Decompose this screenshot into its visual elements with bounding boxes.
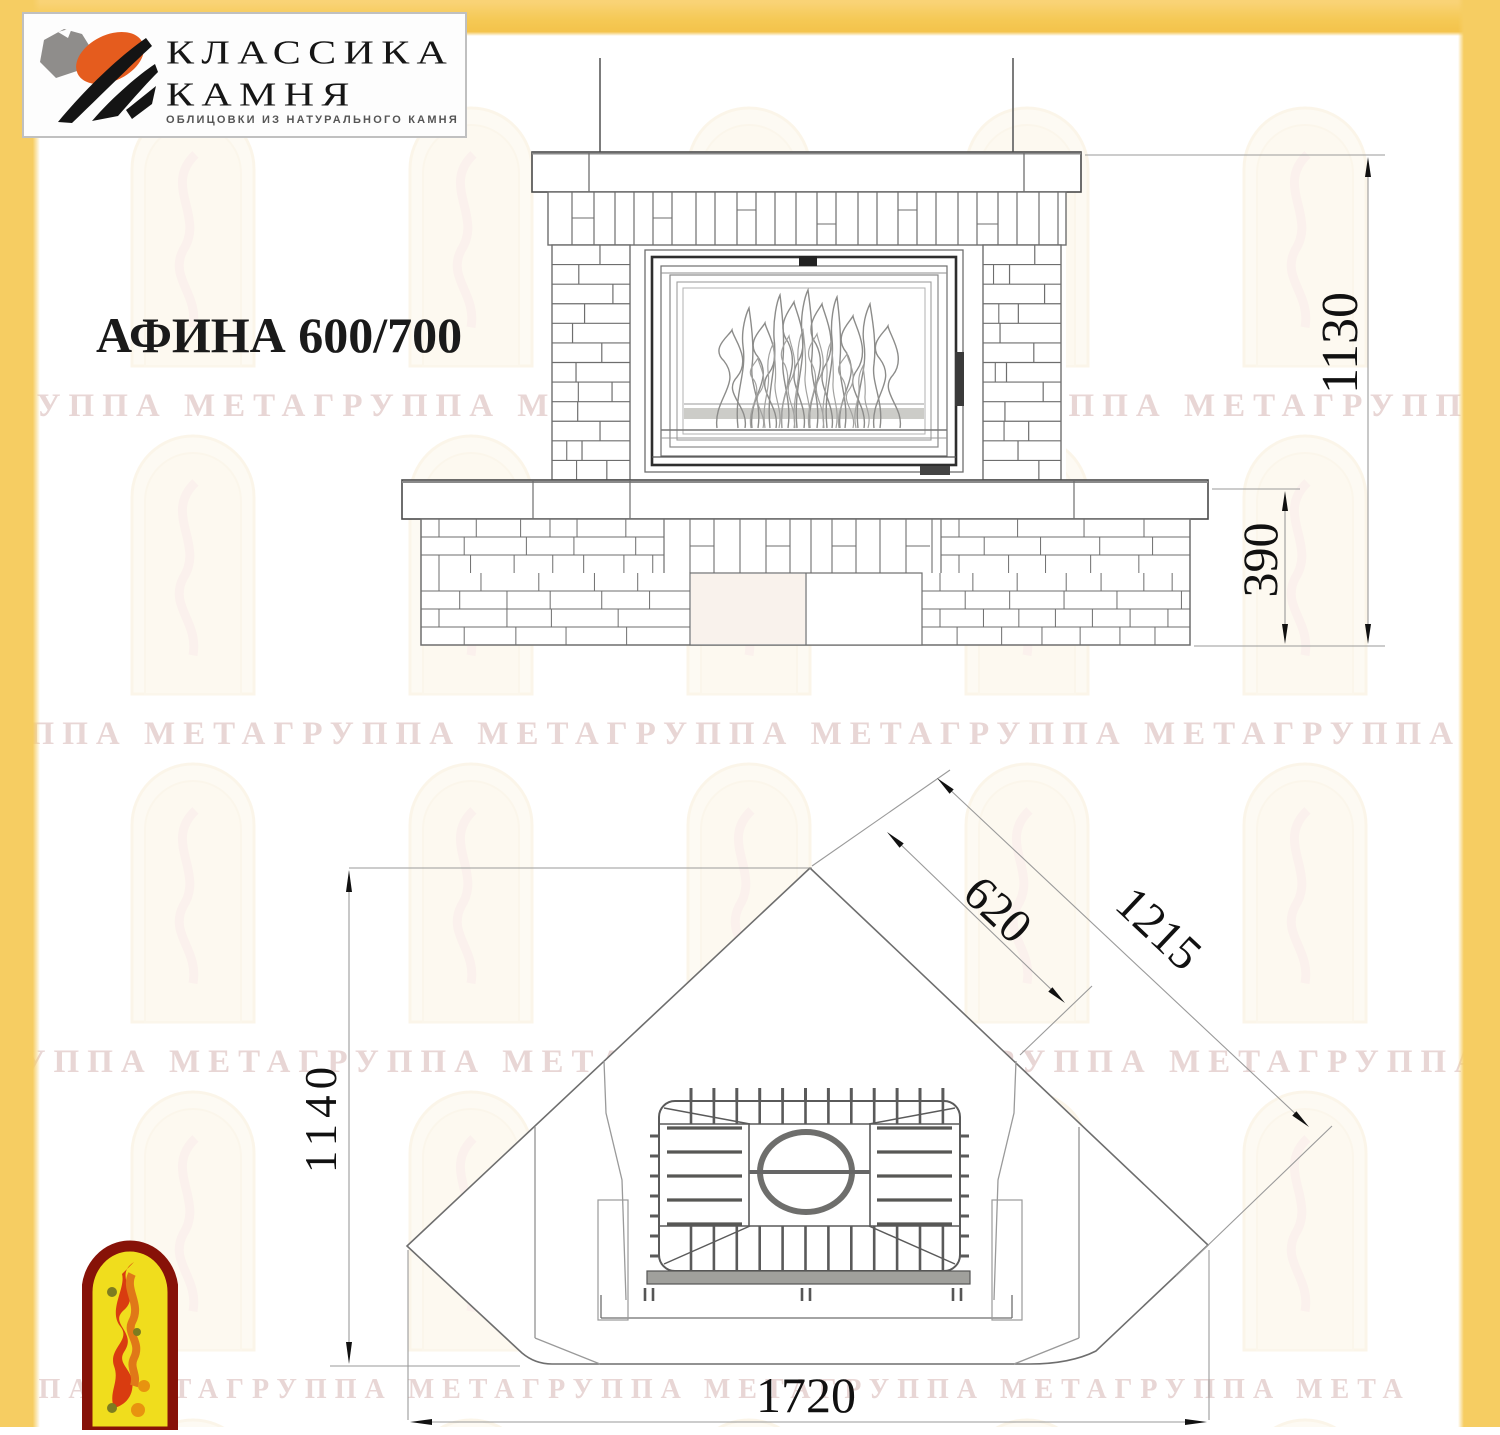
svg-text:390: 390 [1232,523,1288,598]
svg-text:1215: 1215 [1105,877,1211,981]
svg-text:620: 620 [953,866,1042,954]
svg-text:1140: 1140 [296,1061,346,1173]
svg-text:1720: 1720 [756,1367,856,1423]
svg-text:1130: 1130 [1312,292,1369,394]
